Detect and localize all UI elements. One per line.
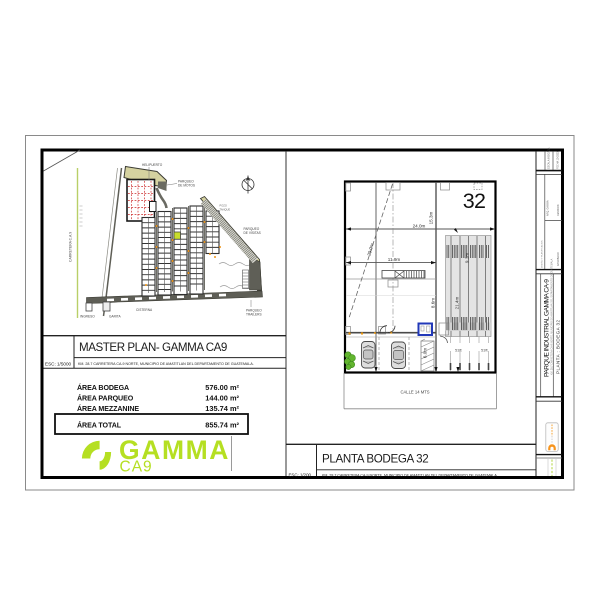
svg-text:REVISION: REVISION [557, 204, 560, 216]
svg-text:APROBADO: APROBADO [557, 252, 560, 266]
svg-text:PLANTA : BODEGA 32: PLANTA : BODEGA 32 [556, 320, 561, 374]
svg-text:CA9: CA9 [120, 459, 153, 476]
svg-text:9.1m: 9.1m [465, 253, 470, 263]
svg-text:INGRESO: INGRESO [80, 315, 95, 319]
svg-text:11.9m: 11.9m [388, 257, 401, 262]
svg-text:135.74 m²: 135.74 m² [205, 404, 239, 413]
svg-text:HELIPUERTO: HELIPUERTO [142, 163, 163, 167]
svg-text:CALLE 14 MTS: CALLE 14 MTS [400, 390, 429, 395]
svg-text:24.0m: 24.0m [413, 224, 426, 229]
svg-text:TRAILERS: TRAILERS [246, 313, 262, 317]
svg-text:GARITA: GARITA [109, 315, 122, 319]
svg-text:DISEÑO Y PLANIFICACION: DISEÑO Y PLANIFICACION [541, 240, 544, 268]
svg-text:ARQ. GAMMA: ARQ. GAMMA [547, 200, 550, 216]
svg-text:6.0m: 6.0m [423, 348, 428, 358]
svg-text:30.0m: 30.0m [366, 243, 374, 257]
svg-text:POZO: POZO [220, 204, 227, 208]
svg-text:21.4m: 21.4m [455, 296, 460, 309]
svg-text:ÁREA BODEGA: ÁREA BODEGA [77, 383, 129, 392]
svg-text:ESC: 1/200: ESC: 1/200 [289, 473, 312, 478]
svg-text:32: 32 [463, 189, 485, 213]
svg-text:53ft: 53ft [455, 348, 463, 353]
svg-text:PLANTA BODEGA 32: PLANTA BODEGA 32 [322, 453, 428, 466]
svg-text:DE VISITAS: DE VISITAS [244, 231, 261, 235]
svg-text:ÁREA MEZZANINE: ÁREA MEZZANINE [77, 404, 139, 413]
svg-text:DE MOTOS: DE MOTOS [178, 184, 195, 188]
svg-text:TANQUE: TANQUE [220, 208, 231, 212]
svg-text:576.00 m²: 576.00 m² [205, 383, 239, 392]
svg-text:KM. 28.7 CARRETERA CA-9 NORTE,: KM. 28.7 CARRETERA CA-9 NORTE, MUNICIPIO… [322, 473, 497, 477]
svg-text:FECHA 10-2023: FECHA 10-2023 [557, 151, 560, 169]
svg-text:ESC: 1/5000: ESC: 1/5000 [45, 361, 71, 366]
svg-text:ÁREA TOTAL: ÁREA TOTAL [77, 421, 122, 430]
svg-text:KM. 28.7 CARRETERA CA-9 NORTE,: KM. 28.7 CARRETERA CA-9 NORTE, MUNICIPIO… [550, 258, 553, 375]
svg-text:ÁREA PARQUEO: ÁREA PARQUEO [77, 394, 134, 403]
svg-text:8.6m: 8.6m [431, 298, 436, 308]
svg-text:15.3m: 15.3m [429, 211, 434, 224]
svg-text:CISTERNA: CISTERNA [136, 308, 153, 312]
svg-text:MASTER PLAN- GAMMA CA9: MASTER PLAN- GAMMA CA9 [79, 341, 227, 354]
svg-text:CARRETERA C.A.9: CARRETERA C.A.9 [69, 232, 73, 262]
svg-text:KM. 28.7 CARRETERA CA-9 NORTE,: KM. 28.7 CARRETERA CA-9 NORTE, MUNICIPIO… [78, 362, 254, 366]
svg-text:ESCALA INDICADA: ESCALA INDICADA [548, 147, 551, 169]
svg-text:53ft: 53ft [481, 348, 489, 353]
svg-text:144.00 m²: 144.00 m² [205, 394, 239, 403]
svg-text:855.74 m²: 855.74 m² [205, 421, 239, 430]
